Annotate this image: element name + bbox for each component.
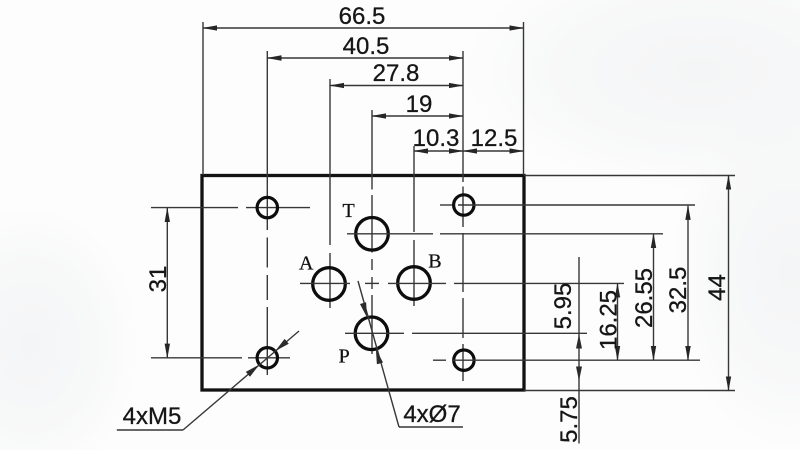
svg-text:19: 19 (406, 91, 433, 118)
svg-text:B: B (428, 251, 441, 273)
svg-text:5.75: 5.75 (556, 396, 583, 443)
svg-text:31: 31 (145, 266, 172, 293)
svg-text:T: T (342, 200, 354, 222)
svg-text:40.5: 40.5 (343, 33, 390, 60)
svg-text:26.55: 26.55 (631, 268, 658, 328)
svg-text:5.95: 5.95 (550, 283, 577, 330)
svg-text:16.25: 16.25 (596, 290, 623, 350)
svg-text:66.5: 66.5 (339, 3, 386, 30)
svg-text:32.5: 32.5 (665, 267, 692, 314)
svg-text:27.8: 27.8 (373, 60, 420, 87)
svg-text:4xØ7: 4xØ7 (403, 401, 460, 428)
svg-text:A: A (299, 253, 314, 275)
svg-text:44: 44 (704, 274, 731, 301)
svg-text:4xM5: 4xM5 (123, 403, 182, 430)
svg-text:10.3: 10.3 (413, 125, 460, 152)
svg-text:12.5: 12.5 (471, 125, 518, 152)
svg-text:P: P (339, 345, 350, 367)
